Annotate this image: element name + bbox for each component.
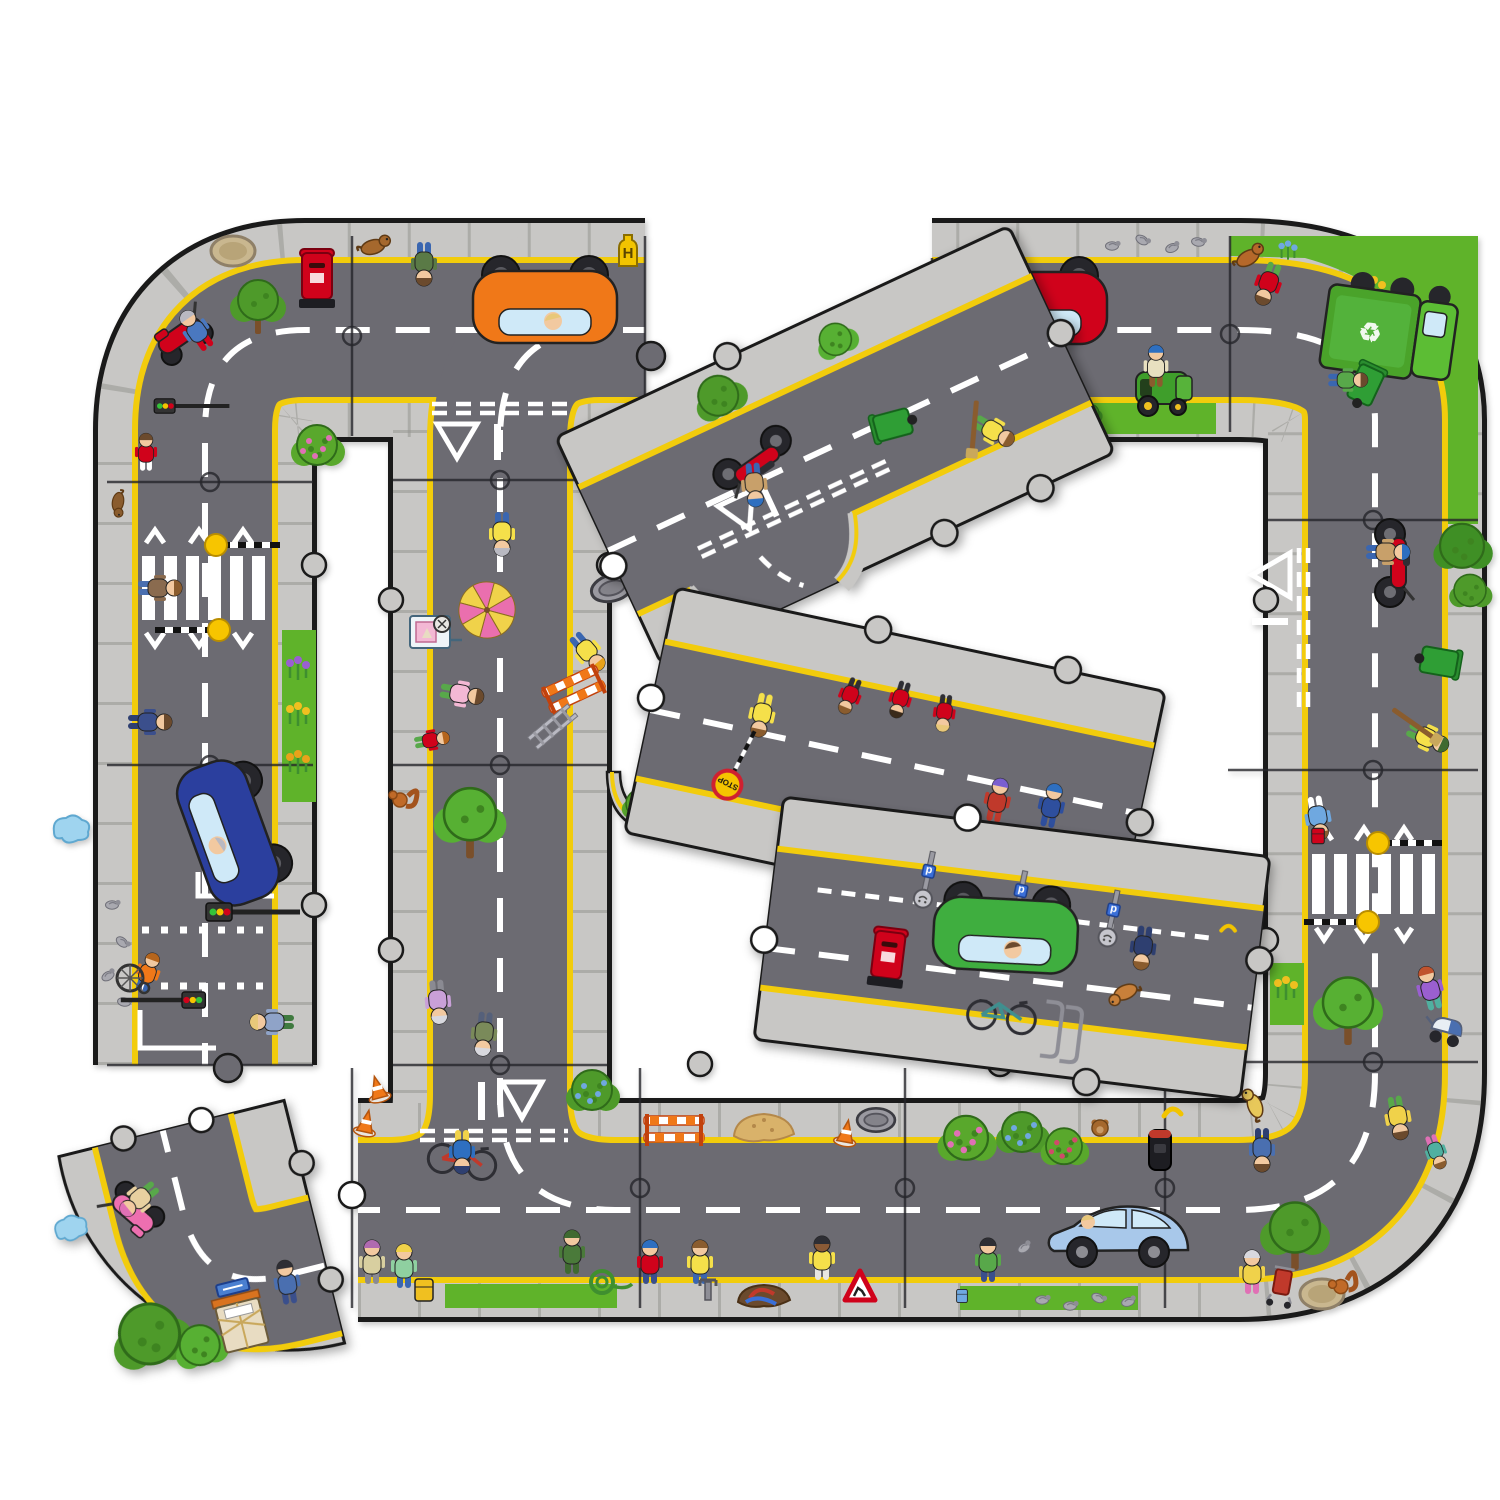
jigsaw-tab — [688, 1052, 712, 1076]
jigsaw-notch — [339, 1182, 365, 1208]
jigsaw-tab — [379, 938, 403, 962]
jigsaw-tab — [302, 553, 326, 577]
red-postbox — [299, 249, 335, 308]
red-backpack — [1312, 828, 1325, 843]
detached-parking-piece: ddd — [737, 780, 1287, 1115]
jigsaw-tab — [379, 588, 403, 612]
jigsaw-tab — [214, 1054, 242, 1082]
litter-bin — [1149, 1130, 1171, 1170]
jigsaw-tab — [1254, 588, 1278, 612]
treepit-icon — [211, 236, 255, 266]
jigsaw-tab — [637, 342, 665, 370]
puddle-icon — [54, 815, 89, 842]
thermos — [957, 1289, 968, 1302]
yellow-suitcase — [415, 1279, 433, 1301]
jigsaw-tab — [302, 893, 326, 917]
truck-label: ♻ — [1356, 316, 1383, 349]
manhole-icon — [857, 1108, 895, 1131]
road-jigsaw: H♻ STOPH ddd — [0, 0, 1500, 1500]
hsign-label: H — [623, 245, 634, 262]
detached-corner-piece — [35, 1084, 358, 1405]
teddy-icon — [1091, 1119, 1108, 1136]
puzzle-photo: H♻ STOPH ddd — [0, 0, 1500, 1500]
